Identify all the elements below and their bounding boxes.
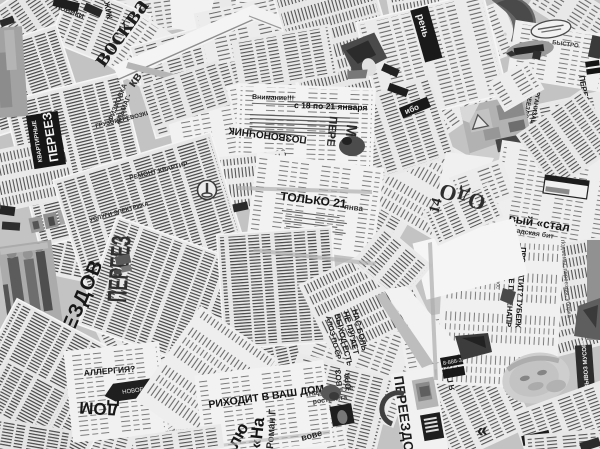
svg-text:ОРА: ОРА <box>343 372 353 390</box>
svg-text:»: » <box>476 421 489 443</box>
svg-text:Внимание!!!: Внимание!!! <box>252 94 294 102</box>
svg-text:ДОМ: ДОМ <box>79 398 119 419</box>
